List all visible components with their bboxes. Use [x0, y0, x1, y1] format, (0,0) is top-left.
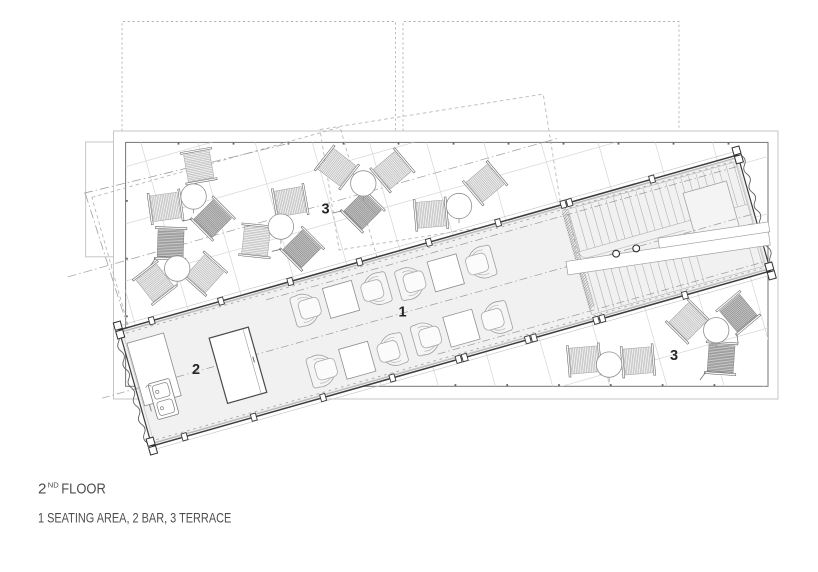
svg-text:ND: ND: [48, 480, 59, 489]
svg-text:2: 2: [38, 481, 46, 498]
svg-text:1: 1: [398, 305, 406, 321]
svg-text:FLOOR: FLOOR: [61, 481, 106, 498]
svg-text:2: 2: [192, 362, 200, 378]
svg-text:3: 3: [670, 348, 678, 364]
svg-text:1 SEATING AREA, 2 BAR, 3 TERRA: 1 SEATING AREA, 2 BAR, 3 TERRACE: [38, 510, 231, 525]
svg-text:3: 3: [321, 202, 329, 218]
